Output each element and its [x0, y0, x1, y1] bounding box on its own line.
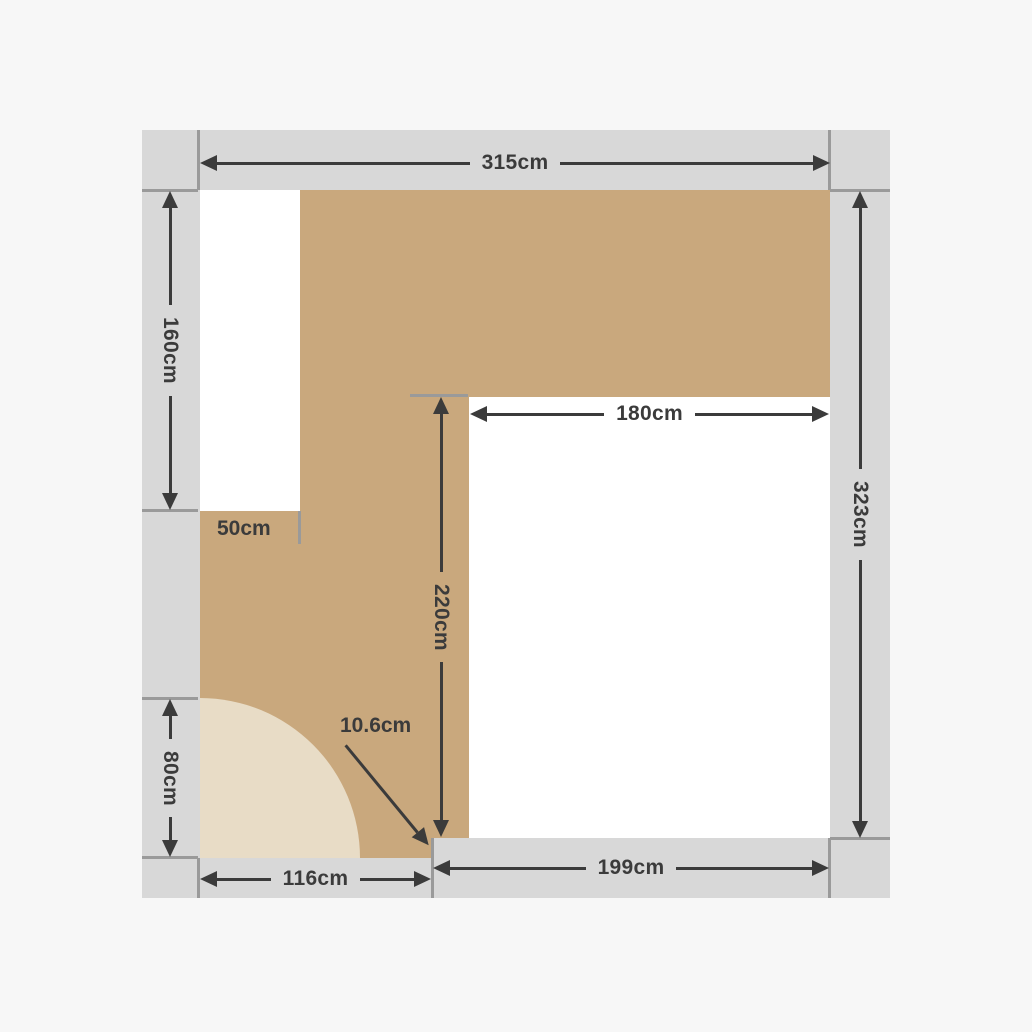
floor-plan-canvas: 315cm 160cm 323cm 180cm 220cm: [0, 0, 1032, 1032]
dimension-label[interactable]: 80cm: [158, 739, 182, 818]
dimension-label[interactable]: 315cm: [470, 151, 561, 175]
arrowhead-left-icon: [433, 860, 450, 876]
arrowhead-up-icon: [433, 397, 449, 414]
arrowhead-down-icon: [162, 493, 178, 510]
dimension-line: [169, 716, 172, 739]
dimension-bottom-left: 116cm: [200, 862, 431, 896]
dimension-line: [360, 878, 414, 881]
dimension-line: [217, 162, 470, 165]
dimension-step-label[interactable]: 50cm: [217, 517, 271, 541]
dimension-line: [695, 413, 812, 416]
dimension-inner-height: 220cm: [424, 397, 458, 837]
arrowhead-right-icon: [812, 406, 829, 422]
arrowhead-down-icon: [852, 821, 868, 838]
dimension-right-height: 323cm: [843, 191, 877, 838]
arrowhead-left-icon: [200, 155, 217, 171]
arrowhead-right-icon: [813, 155, 830, 171]
dimension-line: [450, 867, 586, 870]
dimension-label[interactable]: 116cm: [271, 867, 361, 891]
dimension-line: [169, 396, 172, 493]
dimension-line: [560, 162, 813, 165]
dimension-label[interactable]: 180cm: [604, 402, 695, 426]
dimension-offset-label[interactable]: 10.6cm: [340, 714, 411, 738]
dimension-tick: [298, 511, 301, 544]
arrowhead-up-icon: [162, 191, 178, 208]
dimension-line: [440, 414, 443, 572]
dimension-line: [217, 878, 271, 881]
dimension-bottom-right: 199cm: [433, 851, 829, 885]
dimension-line: [859, 560, 862, 821]
dimension-line: [169, 208, 172, 305]
dimension-top-width: 315cm: [200, 146, 830, 180]
dimension-line: [859, 208, 862, 469]
dimension-label[interactable]: 160cm: [158, 305, 182, 396]
dimension-left-lower: 80cm: [153, 699, 187, 857]
arrowhead-up-icon: [162, 699, 178, 716]
dimension-line: [440, 662, 443, 820]
dimension-line: [676, 867, 812, 870]
dimension-left-upper: 160cm: [153, 191, 187, 510]
arrowhead-left-icon: [470, 406, 487, 422]
arrowhead-left-icon: [200, 871, 217, 887]
arrowhead-right-icon: [812, 860, 829, 876]
arrowhead-up-icon: [852, 191, 868, 208]
dimension-label[interactable]: 220cm: [429, 572, 453, 663]
arrowhead-right-icon: [414, 871, 431, 887]
dimension-line: [169, 817, 172, 840]
arrowhead-down-icon: [162, 840, 178, 857]
dimension-inner-width: 180cm: [470, 397, 829, 431]
dimension-label[interactable]: 199cm: [586, 856, 677, 880]
dimension-line: [487, 413, 604, 416]
arrowhead-down-icon: [433, 820, 449, 837]
dimension-label[interactable]: 323cm: [848, 469, 872, 560]
